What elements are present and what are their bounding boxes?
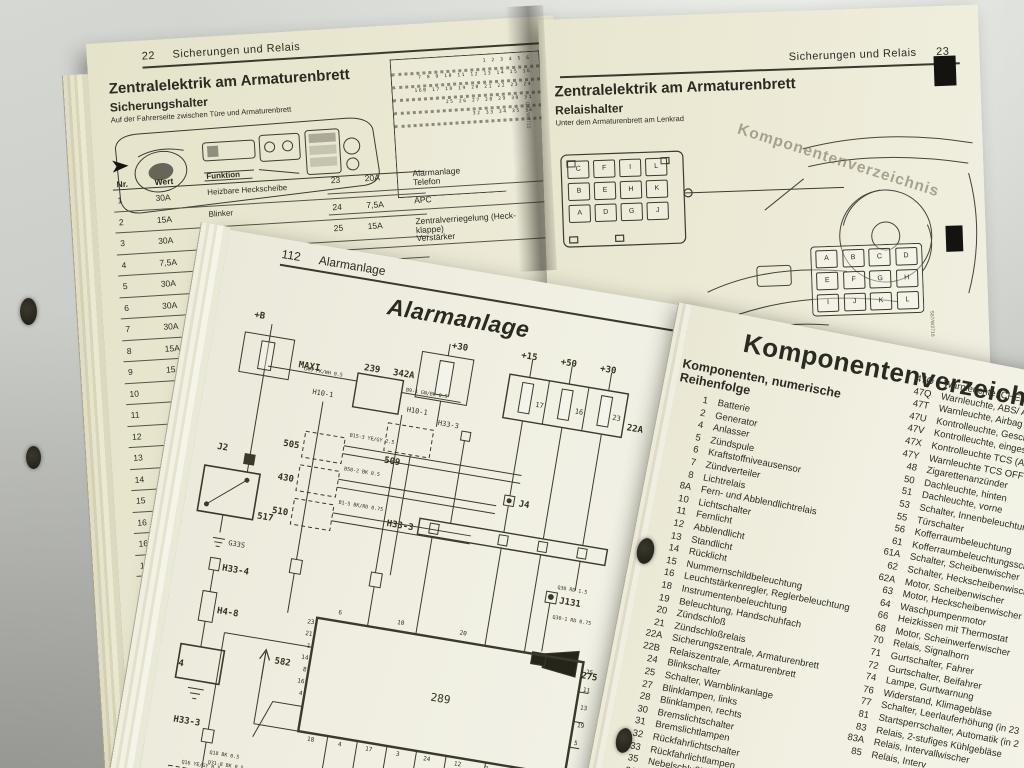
fuse-number: 23 (612, 414, 622, 423)
relay-cell: J (646, 202, 669, 221)
page22-heading: Zentralelektrik am Armaturenbrett (108, 66, 350, 98)
relay-cell: K (870, 292, 893, 311)
h33-3-label: H33-3 (437, 419, 459, 430)
relay-cell: B (842, 249, 865, 268)
relay-cell: A (568, 204, 591, 223)
h33-3-label: H33-3 (386, 519, 414, 533)
wire-code: Q18 BK 0.5 (209, 750, 240, 761)
pointer-arrow-icon (112, 160, 129, 173)
page23-section: Sicherungen und Relais (789, 47, 917, 63)
relay-cell: C (868, 248, 891, 267)
col-nr: Nr. (112, 172, 155, 190)
relay-cell: F (593, 159, 616, 178)
j131-label: J131 (558, 596, 581, 609)
relay-cell: D (594, 203, 617, 222)
relay-cell: G (620, 202, 643, 221)
ground-g33-label: G33S (228, 539, 246, 550)
relay-cell: L (645, 158, 668, 177)
wire-code: B50-2 BK 0.5 (344, 466, 381, 478)
ecu-289-label: 289 (430, 691, 452, 707)
power-label: +30 (599, 364, 617, 377)
relay-cell: K (646, 180, 669, 199)
j2-label: J2 (216, 442, 228, 454)
j4-label: J4 (518, 499, 531, 511)
page112-number: 112 (281, 247, 302, 264)
relay-cell: D (895, 247, 918, 266)
h4-8-label: H4-8 (216, 606, 239, 619)
relay-cell: B (568, 182, 591, 201)
binder-hole (26, 446, 41, 469)
wire-code: B15-3 YE/GY 2.5 (349, 433, 395, 446)
black-tab-marker (934, 55, 957, 86)
page112-section: Alarmanlage (318, 253, 387, 278)
h33-4-label: H33-4 (221, 563, 250, 577)
relay-grid: ABCDEFGHIJKL (810, 243, 924, 317)
label-510: 510 (271, 506, 289, 519)
label-505: 505 (282, 439, 300, 452)
relay-cell: H (895, 269, 918, 288)
box4-label: 4 (178, 658, 186, 669)
relay-cell: G (869, 270, 892, 289)
relay-cell: A (815, 250, 838, 269)
relay-cell: J (843, 293, 866, 312)
binder-hole (20, 298, 37, 325)
relay-cell: I (619, 158, 642, 177)
label-509: 509 (383, 456, 401, 469)
h10-1-label: H10-1 (312, 388, 334, 399)
relay-cell: F (842, 271, 865, 290)
wire-code: G49 PK/WH 0.5 (304, 366, 344, 378)
power-label: +B (253, 310, 266, 322)
power-label: +30 (451, 341, 469, 354)
page23-heading: Zentralelektrik am Armaturenbrett (554, 75, 796, 100)
label-430: 430 (277, 472, 295, 485)
power-label: +50 (560, 357, 578, 370)
relay-cell: E (816, 272, 839, 291)
power-label: +15 (520, 351, 538, 364)
wire-code: B1-5 BK/RD 0.75 (338, 500, 384, 513)
page22-number: 22 (142, 50, 156, 63)
h33-3-label: H33-3 (173, 714, 201, 728)
ecu-pins-bottom: 184173241227 (306, 736, 554, 768)
relay-holder-grid: CFILBEHKADGJ (565, 156, 671, 226)
fuse-number: 17 (535, 401, 545, 410)
wire-code: Q30 RD 1.5 (557, 585, 588, 596)
photo-of-manual-pages: 22 Sicherungen und Relais Zentralelektri… (0, 0, 1024, 768)
fuse-number: 16 (574, 407, 584, 416)
relay-cell: E (594, 181, 617, 200)
black-tab-marker (945, 225, 963, 252)
relay-cell: H (620, 180, 643, 199)
h10-1-label: H10-1 (406, 406, 428, 417)
page23-running-header: Sicherungen und Relais 23 (789, 46, 950, 64)
wire-code: Q30-1 RD 0.75 (552, 615, 592, 627)
ecu-pins-top: 61020 (338, 609, 536, 649)
relay-cell: L (896, 291, 919, 310)
label-22a: 22A (626, 423, 644, 436)
page23-subheading: Relaishalter (555, 101, 623, 117)
relay-cell: C (567, 160, 590, 179)
relay-grid-drawing-code: S67/W2716 (928, 310, 935, 337)
relay-cell: I (817, 294, 840, 313)
